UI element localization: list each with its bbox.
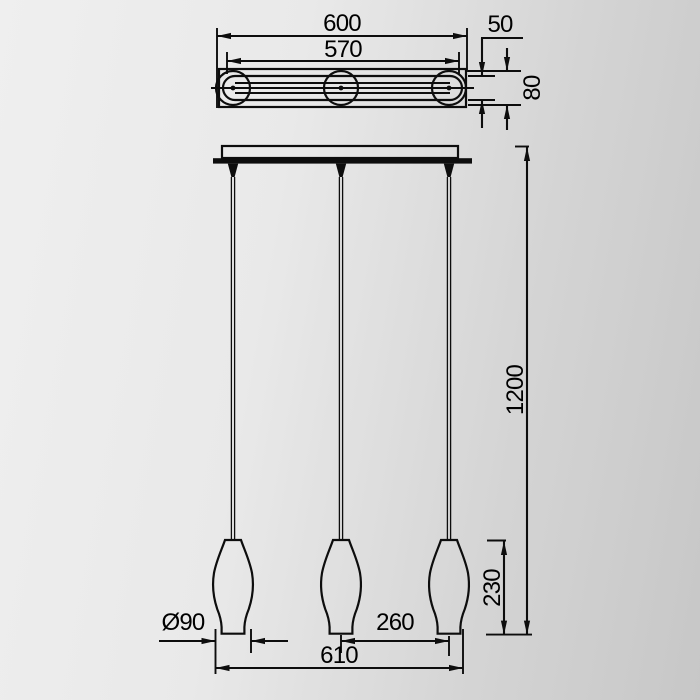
dim-bar-depth-label: 50: [487, 11, 513, 38]
dim-overall-width-label: 610: [320, 642, 358, 669]
dimension-bar-depth: 50: [468, 11, 523, 128]
canopy-base-plate: [213, 158, 472, 163]
dim-outer-width-label: 600: [323, 10, 361, 37]
cord-grip-left: [228, 164, 238, 177]
glass-shade-center: [321, 540, 361, 634]
glass-shade-right: [429, 540, 469, 634]
dim-suspension-height-label: 1200: [502, 364, 529, 415]
dim-canopy-height-label: 80: [519, 75, 546, 101]
glass-shade-left: [213, 540, 253, 634]
ceiling-canopy: [222, 146, 458, 158]
dimension-shade-diameter: Ø90: [159, 609, 288, 674]
dim-shade-height-label: 230: [479, 569, 506, 607]
dim-shade-diameter-label: Ø90: [162, 609, 205, 636]
dimension-canopy-height: 80: [468, 48, 546, 130]
top-view: [211, 69, 474, 107]
center-dot-center: [339, 86, 344, 91]
dim-inner-width-label: 570: [324, 36, 362, 63]
cord-grip-right: [444, 164, 454, 177]
pendant-lamp-drawing: 600 570 50 80: [0, 0, 700, 700]
dim-shade-spacing-label: 260: [376, 609, 414, 636]
cord-grip-center: [336, 164, 346, 177]
center-dot-right: [447, 86, 452, 91]
center-dot-left: [231, 86, 236, 91]
dimension-suspension-height: 1200: [486, 147, 532, 635]
technical-drawing-canvas: 600 570 50 80: [0, 0, 700, 700]
dimension-overall-width: 610: [216, 629, 464, 674]
front-view: [213, 146, 472, 634]
dimension-shade-height: 230: [479, 541, 506, 635]
